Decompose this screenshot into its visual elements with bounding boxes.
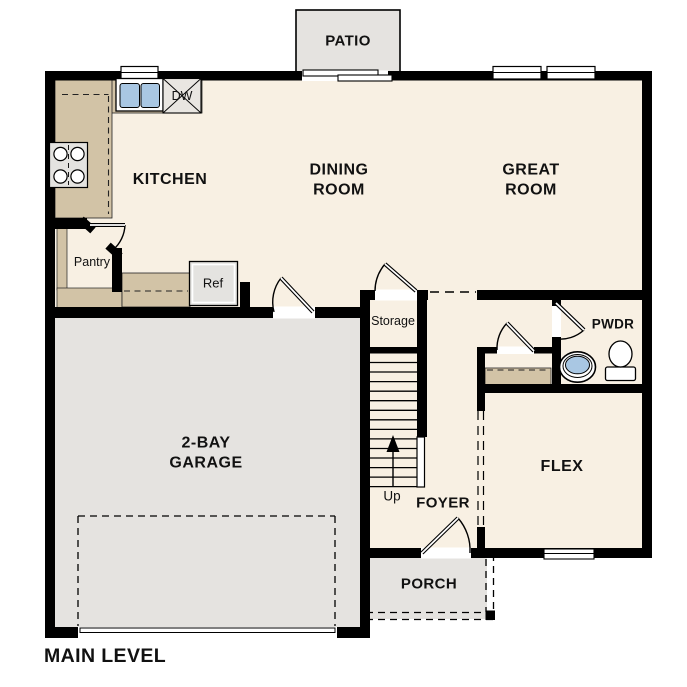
greatroom-window-2 [547,67,595,80]
floor-plan-drawing [0,0,687,687]
wall-flex-left-bottom [477,527,485,554]
storage-label: Storage [371,313,415,329]
porch-label: PORCH [401,574,457,593]
wall-greatroom-bottom-a [360,290,375,300]
pantry-shelf [57,228,67,290]
patio-label: PATIO [325,31,371,50]
level-title: MAIN LEVEL [44,645,166,668]
wall-flex-top [477,384,652,393]
wall-closet-top-a [477,347,497,354]
great-room-label-line1: GREAT [502,161,559,181]
kitchen-sink-icon [116,79,163,112]
vanity-sink-icon [560,352,596,382]
pwdr-label: PWDR [592,315,634,332]
pantry-label: Pantry [74,254,110,270]
greatroom-window-1 [493,67,541,80]
porch-post [486,611,496,621]
wall-stairs-right [417,290,427,437]
stair-handrail [417,437,425,487]
garage-label: 2-BAY GARAGE [169,434,242,475]
foyer-label: FOYER [416,493,470,512]
opening-storage-door [375,290,417,301]
opening-pwdr-door [552,306,561,337]
great-room-label-line2: ROOM [502,181,559,201]
wall-ref-stub [240,282,250,308]
great-room-label: GREAT ROOM [502,161,559,202]
garage-label-line2: GARAGE [169,454,242,474]
stove-icon [50,143,88,188]
wall-garage-top [45,307,370,318]
kitchen-label: KITCHEN [133,170,208,190]
counter-lower-run [122,273,190,307]
wall-garage-right [360,292,370,638]
flex-label: FLEX [541,457,584,477]
wall-flex-left-top [477,347,485,411]
dining-room-label: DINING ROOM [310,161,369,202]
wall-storage-bottom [366,347,419,354]
garage-label-line1: 2-BAY [169,434,242,454]
wall-exterior-front [361,548,652,558]
dining-room-label-line1: DINING [310,161,369,181]
up-label: Up [383,487,400,504]
opening-cased-hall [428,290,477,301]
dining-room-label-line2: ROOM [310,181,369,201]
flex-window [544,549,594,559]
wall-exterior-right [642,71,652,558]
floor-plan: PATIO KITCHEN DINING ROOM GREAT ROOM 2-B… [0,0,687,687]
ref-label: Ref [203,276,223,293]
kitchen-window [121,67,158,80]
dw-label: DW [172,88,193,104]
garage-door-panel [80,628,335,633]
